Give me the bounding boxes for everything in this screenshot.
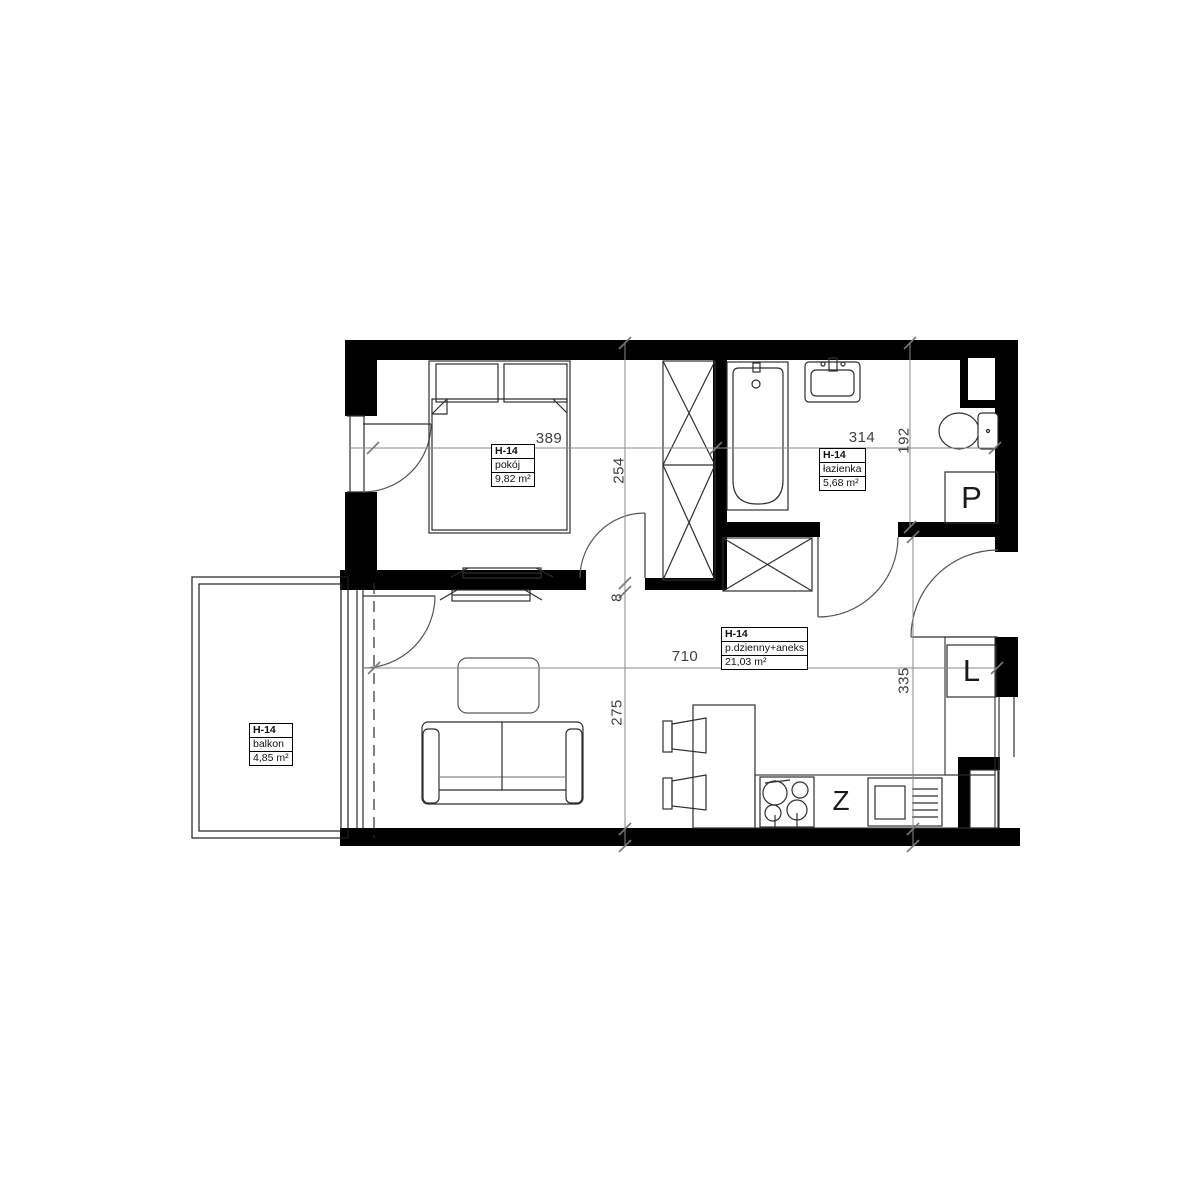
sofa xyxy=(422,722,583,804)
room-area: 5,68 m² xyxy=(820,476,865,490)
bathtub xyxy=(727,362,788,510)
balcony-outline xyxy=(192,577,348,838)
washing-machine-label: P xyxy=(945,472,998,523)
room-id: H-14 xyxy=(722,628,807,641)
radiator-bedroom xyxy=(451,568,553,578)
room-name: pokój xyxy=(492,458,534,472)
bathroom-sink xyxy=(805,358,860,402)
dim-bedroom-width: 389 xyxy=(532,430,566,447)
dim-bathroom-width: 314 xyxy=(845,429,879,446)
hall-wardrobe xyxy=(723,538,812,591)
room-name: łazienka xyxy=(820,462,865,476)
dining-chair xyxy=(663,718,706,753)
kitchen-window xyxy=(970,697,1014,828)
bedroom-wardrobe xyxy=(663,361,715,580)
fridge-label: L xyxy=(947,645,996,697)
radiator-living xyxy=(440,590,542,601)
dim-kitchen-depth: 335 xyxy=(896,664,913,698)
room-area: 4,85 m² xyxy=(250,751,292,765)
dimension-lines xyxy=(350,343,997,847)
room-name: balkon xyxy=(250,737,292,751)
toilet xyxy=(939,413,998,449)
dishwasher-label: Z xyxy=(814,776,868,826)
room-label-bedroom: H-14 pokój 9,82 m² xyxy=(491,444,535,487)
dim-living-depth: 275 xyxy=(609,696,626,730)
room-name: p.dzienny+aneks xyxy=(722,641,807,655)
room-label-bathroom: H-14 łazienka 5,68 m² xyxy=(819,448,866,491)
room-id: H-14 xyxy=(820,449,865,462)
room-id: H-14 xyxy=(492,445,534,458)
living-window-wall xyxy=(357,583,374,838)
dim-living-width: 710 xyxy=(668,648,702,665)
bedroom-window xyxy=(347,416,431,492)
bathroom-door xyxy=(818,537,898,617)
dim-bathroom-depth: 192 xyxy=(896,424,913,458)
plan-linework xyxy=(0,0,1200,1200)
coffee-table xyxy=(458,658,539,713)
kitchen-sink xyxy=(868,778,942,826)
stove xyxy=(760,777,814,828)
room-area: 9,82 m² xyxy=(492,472,534,486)
room-id: H-14 xyxy=(250,724,292,737)
entrance-door xyxy=(911,550,998,637)
dining-chair xyxy=(663,775,706,810)
dim-bedroom-depth: 254 xyxy=(611,454,628,488)
bedroom-door xyxy=(580,513,645,578)
floor-plan: 389 254 8 314 192 710 275 335 H-14 pokój… xyxy=(0,0,1200,1200)
room-area: 21,03 m² xyxy=(722,655,807,669)
room-label-living: H-14 p.dzienny+aneks 21,03 m² xyxy=(721,627,808,670)
dim-partition-gap: 8 xyxy=(609,588,626,608)
room-label-balcony: H-14 balkon 4,85 m² xyxy=(249,723,293,766)
